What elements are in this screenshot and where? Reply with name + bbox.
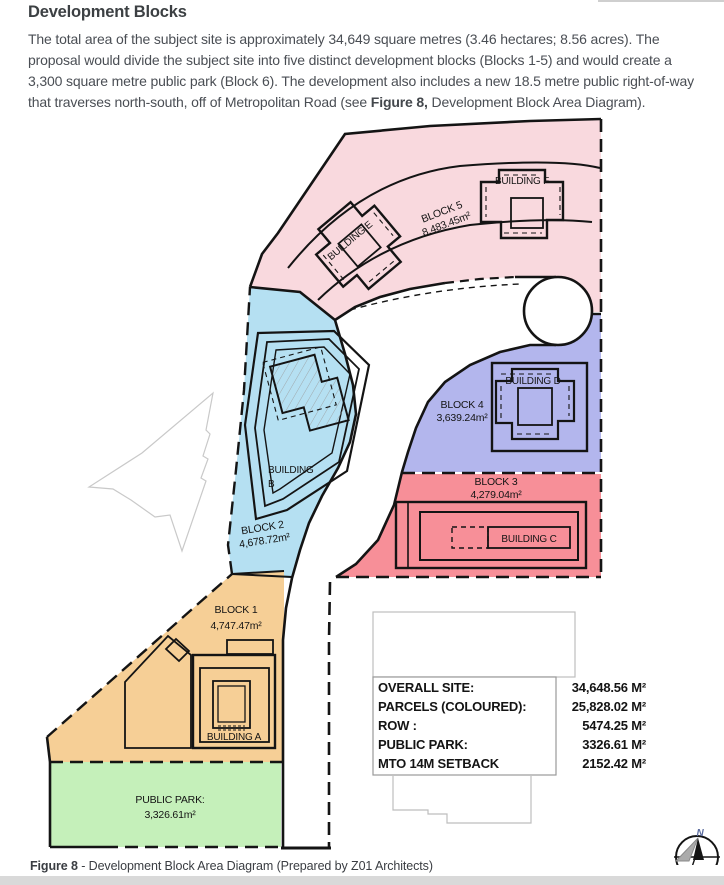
figure-caption-text: - Development Block Area Diagram (Prepar… (78, 859, 433, 873)
svg-text:PUBLIC PARK:: PUBLIC PARK: (135, 794, 204, 806)
faint-arrow-outline (89, 393, 213, 551)
table-row-value: 2152.42 M² (582, 756, 647, 771)
table-row-label: PARCELS (COLOURED): (378, 699, 526, 714)
figure-caption: Figure 8 - Development Block Area Diagra… (30, 859, 433, 873)
compass-north-label: N (696, 828, 704, 839)
table-row-label: OVERALL SITE: (378, 680, 474, 695)
svg-text:4,747.47m²: 4,747.47m² (210, 620, 262, 632)
culdesac-bulb (524, 277, 592, 345)
svg-text:BLOCK 3: BLOCK 3 (475, 476, 518, 488)
building-f-label: BUILDING F (495, 176, 549, 187)
table-row-label: ROW : (378, 718, 417, 733)
table-row-label: PUBLIC PARK: (378, 737, 468, 752)
intro-paragraph: The total area of the subject site is ap… (28, 29, 704, 113)
document-page: Development Blocks The total area of the… (0, 0, 724, 885)
page-title: Development Blocks (28, 3, 187, 22)
area-summary-table: OVERALL SITE: 34,648.56 M² PARCELS (COLO… (373, 677, 647, 775)
figure-caption-bold: Figure 8 (30, 859, 78, 873)
table-row-value: 34,648.56 M² (572, 680, 647, 695)
block3-label: BLOCK 3 4,279.04m² (470, 476, 522, 501)
building-b-label-line1: BUILDING (268, 465, 314, 476)
faint-outline-upper (373, 612, 575, 677)
svg-text:3,639.24m²: 3,639.24m² (436, 412, 488, 424)
table-row-value: 5474.25 M² (582, 718, 647, 733)
building-c-label: BUILDING C (501, 534, 556, 545)
svg-text:3,326.61m²: 3,326.61m² (144, 809, 196, 821)
svg-text:4,279.04m²: 4,279.04m² (470, 489, 522, 501)
bottom-gray-bar (0, 876, 724, 885)
svg-text:BLOCK 1: BLOCK 1 (215, 604, 258, 616)
compass-icon: N (674, 828, 720, 865)
top-divider (598, 0, 724, 2)
table-row-value: 25,828.02 M² (572, 699, 647, 714)
site-plan-diagram: BUILDING E BUILDING F BUILDING B (0, 105, 724, 865)
building-a-label: BUILDING A (207, 732, 262, 743)
svg-text:BLOCK 4: BLOCK 4 (441, 399, 484, 411)
block4-label: BLOCK 4 3,639.24m² (436, 399, 488, 424)
building-d-label: BUILDING D (505, 376, 560, 387)
table-row-label: MTO 14M SETBACK (378, 756, 500, 771)
table-row-value: 3326.61 M² (582, 737, 647, 752)
faint-outline-lower (393, 776, 531, 823)
building-b-label-line2: B (268, 479, 275, 490)
